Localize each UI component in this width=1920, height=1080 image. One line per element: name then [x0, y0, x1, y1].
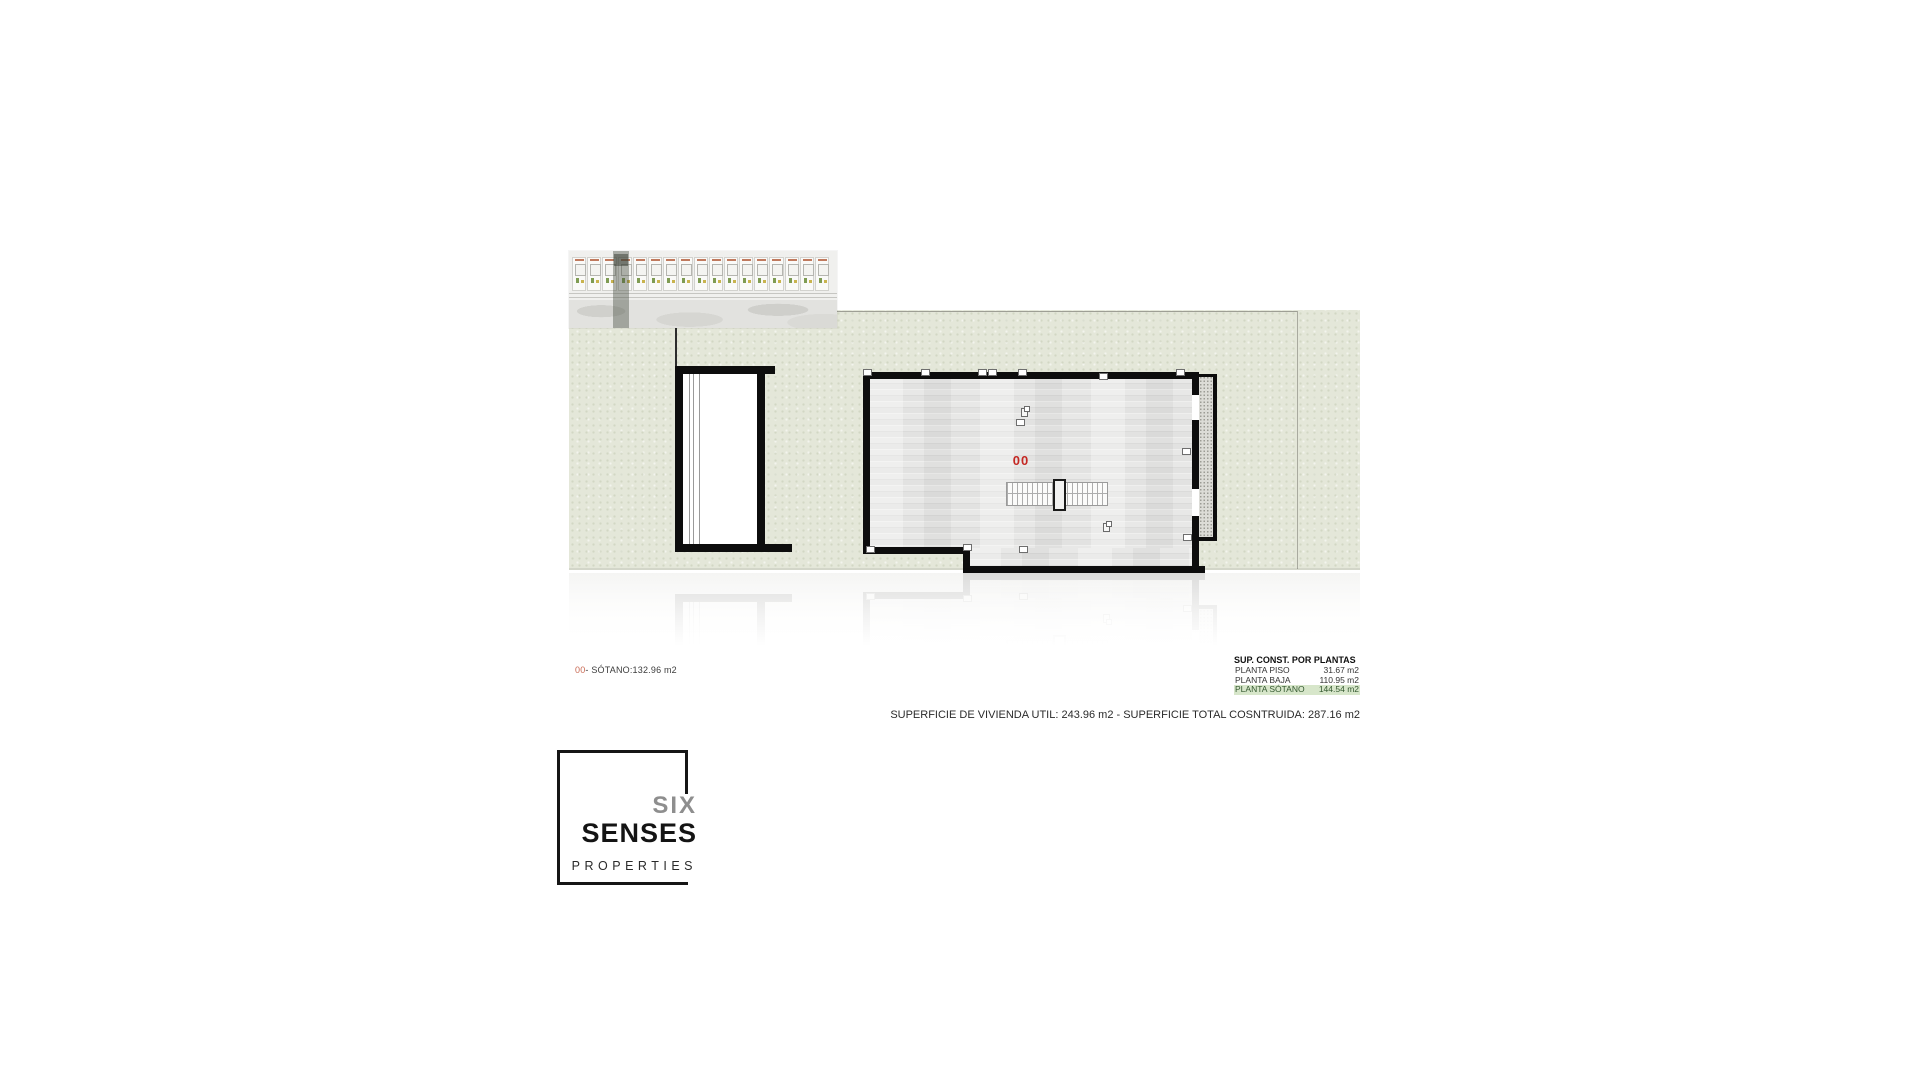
areas-table-row-highlighted: PLANTA SÓTANO 144.54 m2: [1234, 685, 1360, 695]
window-opening: [1192, 395, 1199, 420]
logo-word-six: SIX: [565, 794, 697, 818]
dimension-marker: [921, 369, 930, 376]
site-units-row: [572, 257, 830, 291]
dimension-marker: [988, 369, 997, 376]
floor-caption: 00- SÓTANO:132.96 m2: [575, 665, 677, 675]
logo-word-senses: SENSES: [565, 820, 697, 847]
company-logo: SIX SENSES PROPERTIES: [557, 750, 688, 885]
logo-text: SIX SENSES PROPERTIES: [565, 794, 697, 873]
row-label: PLANTA SÓTANO: [1235, 685, 1305, 695]
staircase: [1006, 482, 1108, 506]
site-plan-strip: [569, 251, 837, 328]
floor-caption-number: 00: [575, 665, 585, 675]
dimension-marker: [1182, 448, 1191, 455]
reflection: 00: [569, 573, 1360, 651]
plan-wall-bottom-upper: [863, 547, 970, 554]
buildings-layer: 00: [569, 310, 1360, 573]
unit-cell: [648, 257, 662, 291]
plot-terrain: 00: [569, 310, 1360, 570]
site-terrain: [569, 300, 837, 328]
floor-number-label: 00: [1001, 453, 1041, 468]
unit-cell: [739, 257, 753, 291]
window-opening: [1192, 489, 1199, 516]
dimension-marker: [866, 546, 875, 553]
staircase-core-wall: [1053, 479, 1066, 511]
plan-wall-top: [863, 372, 1199, 379]
lightwell-border: [1199, 537, 1217, 541]
areas-table-header: SUP. CONST. POR PLANTAS: [1234, 655, 1360, 665]
garage-ramp-interior: [683, 374, 757, 544]
unit-cell: [800, 257, 814, 291]
dimension-marker: [963, 544, 972, 551]
unit-cell: [678, 257, 692, 291]
floor-caption-text: - SÓTANO:132.96 m2: [585, 665, 676, 675]
lightwell-border: [1213, 376, 1217, 541]
dimension-marker: [863, 369, 872, 376]
unit-cell: [754, 257, 768, 291]
dimension-marker: [1176, 369, 1185, 376]
unit-cell: [663, 257, 677, 291]
unit-cell: [724, 257, 738, 291]
unit-cell: [633, 257, 647, 291]
dimension-marker: [1099, 373, 1108, 380]
dimension-marker: [1016, 419, 1025, 426]
dimension-marker: [1018, 369, 1027, 376]
dimension-marker: [1019, 546, 1028, 553]
unit-cell: [694, 257, 708, 291]
unit-cell: [587, 257, 601, 291]
unit-cell: [815, 257, 829, 291]
unit-cell: [709, 257, 723, 291]
plan-wall-bottom-lower: [963, 566, 1205, 573]
logo-word-properties: PROPERTIES: [565, 860, 697, 873]
dimension-marker: [1183, 534, 1192, 541]
garage-wall-right: [757, 366, 765, 552]
furniture-symbol: [1021, 408, 1028, 417]
unit-cell: [572, 257, 586, 291]
areas-table: SUP. CONST. POR PLANTAS PLANTA PISO 31.6…: [1234, 655, 1360, 695]
basement-floor-extension: [967, 548, 1193, 566]
garage-wall-bottom: [675, 544, 792, 552]
surface-summary: SUPERFICIE DE VIVIENDA UTIL: 243.96 m2 -…: [890, 709, 1360, 721]
row-value: 144.54 m2: [1319, 685, 1359, 695]
plan-wall-left: [863, 372, 870, 554]
selected-unit-highlight: [613, 251, 629, 328]
lightwell-stipple: [1199, 376, 1213, 537]
unit-cell: [785, 257, 799, 291]
dimension-marker: [978, 369, 987, 376]
unit-cell: [769, 257, 783, 291]
furniture-symbol: [1103, 523, 1110, 532]
plan-sheet: 00: [0, 0, 1920, 1080]
garage-wall-left: [675, 366, 683, 552]
